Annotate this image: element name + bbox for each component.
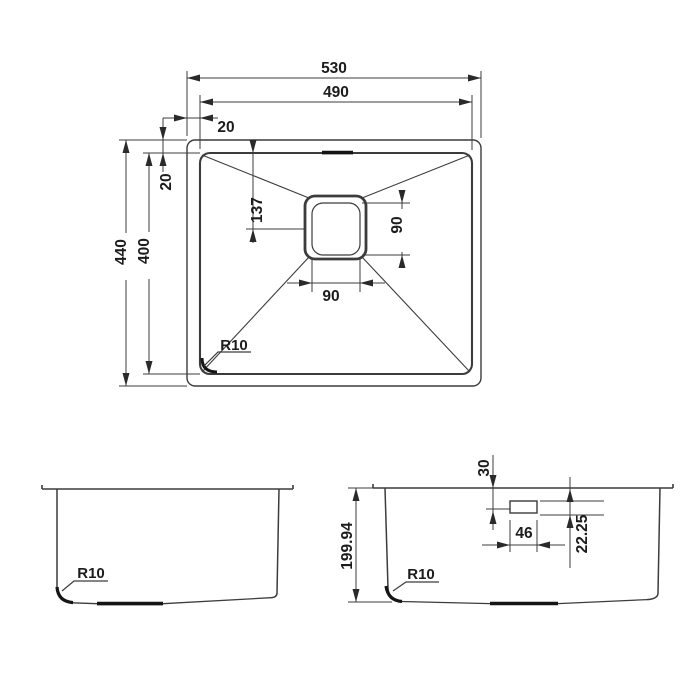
side-view-corner-radius-label: R10 [77, 565, 105, 582]
dim-outer-width-label: 530 [321, 60, 347, 77]
top-view-fold-line-top-left [202, 155, 309, 198]
dim-drain-width-label: 90 [322, 288, 339, 305]
dim-inner-depth-label: 400 [136, 238, 153, 264]
side-view-r10-leader [62, 581, 108, 591]
sink-technical-drawing: 530 490 20 20 440 400 137 90 90 R10 R10 [0, 0, 700, 700]
dim-490-extension-lines [200, 95, 472, 150]
front-view-r10-leader [393, 582, 439, 591]
top-view-dimensions [119, 71, 481, 386]
front-view-height-label: 199.94 [339, 522, 356, 570]
dim-drain-position-label: 137 [249, 197, 266, 223]
side-view-right-wall [271, 489, 279, 598]
dim-drain-height-label: 90 [389, 216, 406, 233]
front-view-labels: 199.94 30 46 22.25 R10 [339, 459, 591, 583]
top-view-corner-radius-label: R10 [220, 337, 248, 354]
top-view-r10-leader [204, 352, 251, 366]
dim-outer-depth-label: 440 [113, 239, 130, 265]
front-view-corner-radius-label: R10 [407, 566, 435, 583]
dim-inner-width-label: 490 [323, 84, 349, 101]
overflow-depth-label: 22.25 [574, 514, 591, 553]
dim-offset-vertical-label: 20 [158, 173, 175, 190]
overflow-top-offset-label: 30 [476, 459, 493, 476]
top-view-drain-opening-outline [312, 203, 360, 255]
dim-2225-extension-lines [540, 501, 604, 515]
side-view [42, 485, 293, 604]
drawing-canvas: 530 490 20 20 440 400 137 90 90 R10 R10 [0, 0, 700, 700]
front-view [373, 484, 673, 604]
top-view-fold-line-bottom-right [362, 257, 470, 372]
side-view-left-wall [57, 489, 72, 603]
top-view-fold-line-bottom-left [202, 257, 309, 372]
top-view-fold-line-top-right [362, 155, 470, 198]
dim-offset-horizontal-label: 20 [217, 119, 234, 136]
front-view-right-wall [647, 488, 660, 600]
front-view-overflow-hole-outline [510, 501, 537, 513]
side-view-corner-fillet-arc [57, 587, 73, 603]
front-view-left-wall [385, 488, 401, 602]
top-view-arrowheads [123, 75, 482, 387]
side-view-rim-line [42, 485, 293, 489]
dim-137-line [246, 140, 305, 243]
overflow-width-label: 46 [515, 525, 533, 542]
front-view-rim-line [373, 484, 673, 488]
